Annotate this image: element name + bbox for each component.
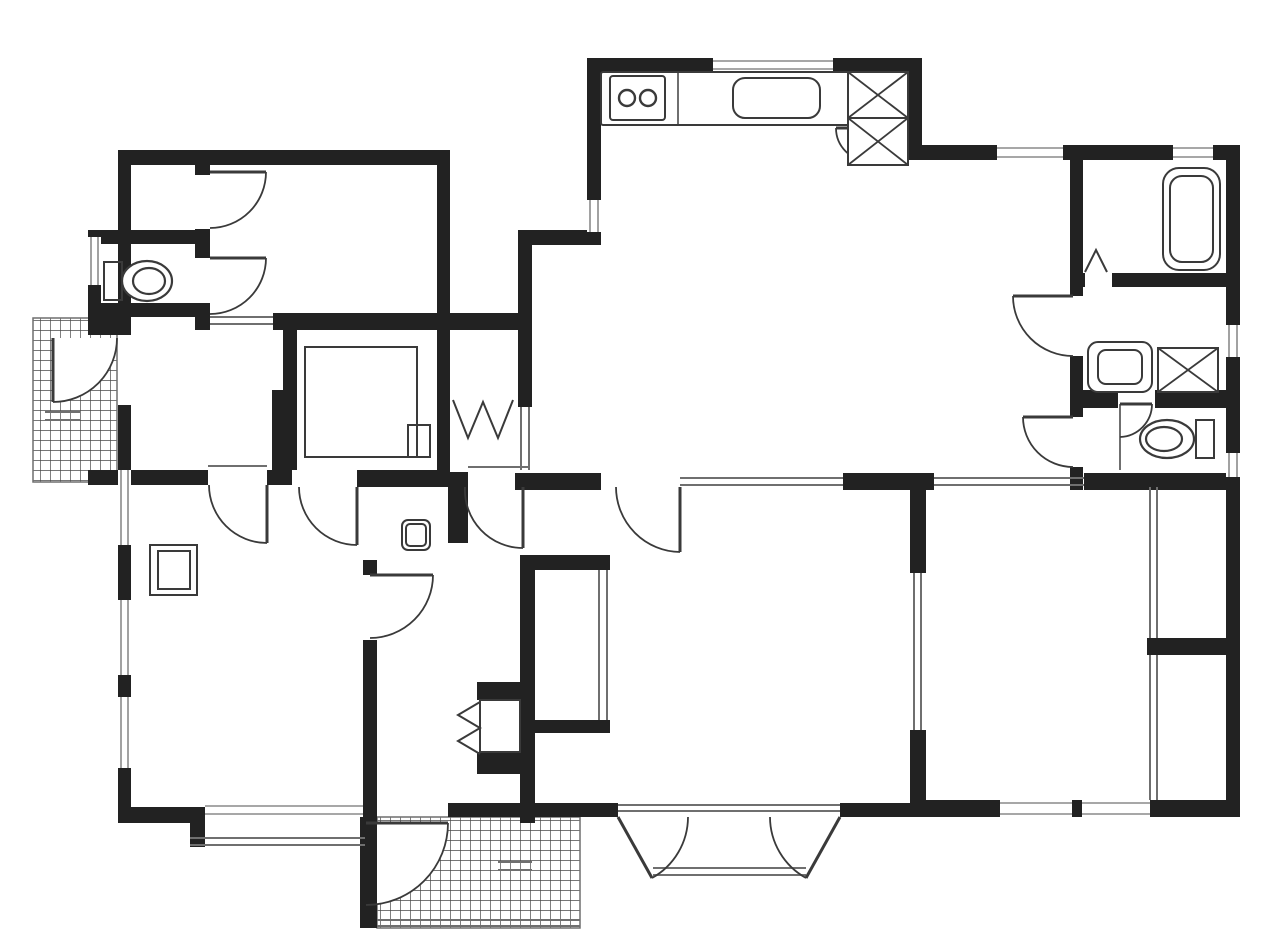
wall-segment (267, 470, 292, 485)
wall-segment (477, 752, 522, 774)
wall-segment (273, 313, 532, 330)
wall-segment (515, 473, 601, 490)
wall-segment (518, 232, 532, 407)
toilet-bowl-inner-symbol (1146, 427, 1182, 451)
wall-segment (357, 470, 450, 487)
wall-segment (363, 560, 377, 575)
window (587, 200, 601, 232)
wall-segment (363, 640, 377, 803)
wall-segment (195, 315, 210, 330)
wall-segment (118, 150, 450, 165)
window (118, 697, 131, 768)
kitchen-sink-symbol (733, 78, 820, 118)
window (1226, 453, 1240, 477)
stove-burner-symbol (640, 90, 656, 106)
wall-segment (908, 58, 922, 160)
wall-segment (88, 317, 118, 335)
wall-segment (520, 555, 535, 823)
wall-segment (88, 230, 210, 244)
floor-plan (0, 0, 1280, 943)
window (118, 470, 131, 545)
window (1226, 325, 1240, 357)
floor-plan-page (0, 0, 1280, 943)
wall-segment (1084, 473, 1240, 490)
wall-segment (195, 165, 210, 175)
wall-segment (1070, 160, 1083, 273)
wall-segment (587, 58, 601, 200)
wall-segment (1070, 356, 1083, 417)
window (713, 58, 833, 72)
wall-segment (437, 150, 450, 473)
storage-space-symbol (848, 118, 908, 165)
wall-segment (1070, 273, 1085, 287)
refrigerator-space-symbol (848, 72, 908, 118)
wall-segment (915, 800, 1240, 817)
wall-segment (1112, 273, 1240, 287)
window (205, 803, 363, 817)
wall-segment (910, 487, 926, 573)
wall-segment (448, 472, 468, 543)
toilet-bowl-inner-symbol (133, 268, 165, 294)
washing-machine-symbol (1158, 348, 1218, 392)
stove-burner-symbol (619, 90, 635, 106)
window (88, 237, 101, 285)
wall-segment (88, 470, 208, 485)
wall-segment (88, 303, 210, 317)
wall-segment (518, 230, 601, 245)
wall-segment (520, 720, 610, 733)
wall-segment (840, 803, 930, 817)
wall-segment (195, 229, 210, 258)
window (118, 600, 131, 675)
wall-segment (477, 682, 522, 700)
wall-segment (1147, 638, 1240, 655)
wall-segment (190, 807, 205, 847)
